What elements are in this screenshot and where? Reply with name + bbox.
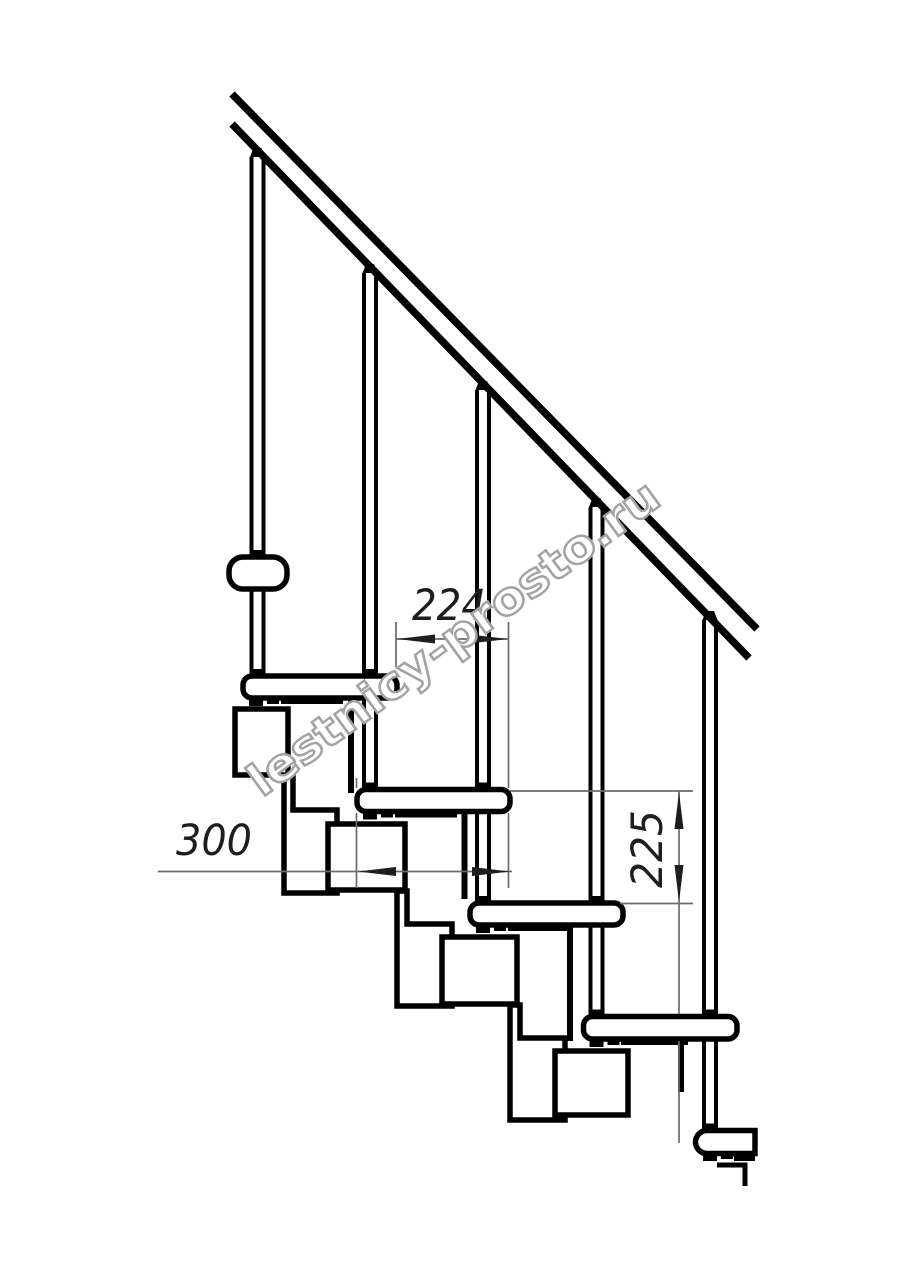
dimension-label-depth: 300 [176,816,252,866]
handrail [232,94,757,658]
staircase-technical-drawing: 224 300 225 lestnicy-prosto.ru [0,0,914,1280]
baluster-4 [591,507,603,1017]
drawing-canvas: 224 300 225 lestnicy-prosto.ru [0,0,914,1280]
handrail-top-edge [232,94,757,629]
tread-2 [357,790,510,812]
stringer-module [555,1051,628,1115]
baluster-5 [704,620,716,1131]
stringer-module [442,937,517,1004]
tread-5-partial [696,1131,756,1154]
tread-3 [470,903,623,925]
tread-4 [584,1017,738,1040]
arrow-up [675,792,684,829]
upper-flight-tread-end [229,557,287,589]
stringer-module [328,824,405,890]
watermark: lestnicy-prosto.ru [237,469,670,807]
stringer-module-partial [717,1165,745,1186]
baluster-1 [252,157,264,676]
arrow-down [675,865,684,902]
dimension-label-rise: 225 [623,810,673,888]
